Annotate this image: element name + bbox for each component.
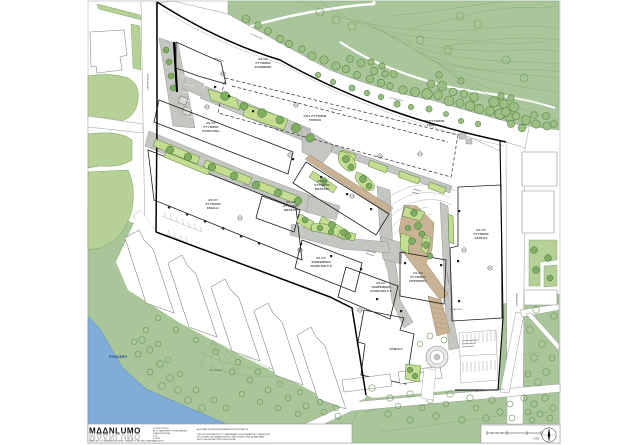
svg-text:PYHÄJÄRVI: PYHÄJÄRVI: [109, 355, 127, 359]
svg-text:TAHMELANKATU: TAHMELANKATU: [146, 73, 149, 91]
svg-text:MUUTTUA SUUNNITTELUN EDETESSÄ.: MUUTTUA SUUNNITTELUN EDETESSÄ.: [197, 438, 236, 441]
svg-text:9.9.2020: 9.9.2020: [153, 438, 160, 440]
svg-text:PATRUUNA: PATRUUNA: [202, 129, 220, 133]
svg-text:TRIKOO: TRIKOO: [427, 123, 440, 127]
svg-text:NAHKURILA 8: NAHKURILA 8: [310, 264, 332, 268]
svg-text:KAMREERI: KAMREERI: [255, 65, 272, 69]
svg-text:VARTIJA: VARTIJA: [474, 236, 488, 240]
svg-text:PYSÄKÖINTI: PYSÄKÖINTI: [449, 308, 463, 311]
svg-text:OPPIPOIKA: OPPIPOIKA: [409, 279, 427, 283]
svg-text:SATAMAKATU: SATAMAKATU: [515, 293, 518, 308]
svg-text:PUUTARHA: PUUTARHA: [209, 369, 221, 372]
svg-text:VÖMALA: VÖMALA: [389, 346, 403, 351]
svg-text:MESTARI: MESTARI: [284, 208, 298, 212]
svg-text:1:400: 1:400: [533, 438, 540, 441]
svg-text:KISÄLLI: KISÄLLI: [207, 206, 219, 210]
svg-text:ALUSTAVA SUUNNITELMA MARKKINOI: ALUSTAVA SUUNNITELMA MARKKINOINTIA VARTE…: [197, 428, 249, 431]
svg-text:TRIKOO: TRIKOO: [309, 118, 322, 122]
svg-text:NAHKURILA 9: NAHKURILA 9: [370, 289, 392, 293]
svg-text:MESTARI: MESTARI: [315, 187, 329, 191]
